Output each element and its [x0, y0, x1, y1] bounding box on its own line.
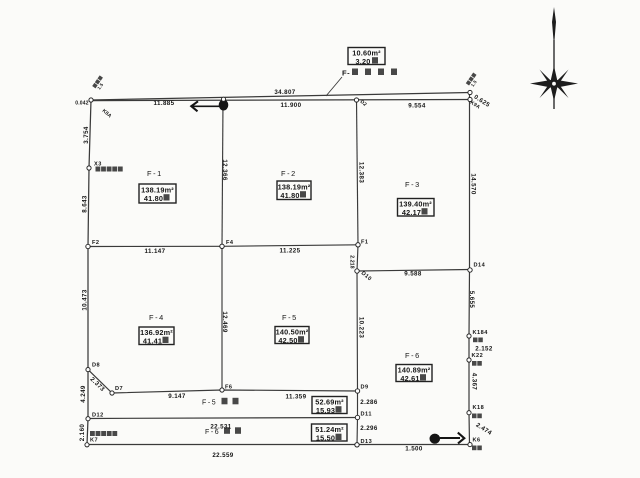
svg-text:F-1: F-1: [147, 169, 163, 178]
svg-text:K7: K7: [90, 438, 98, 444]
svg-text:41.80: 41.80: [144, 194, 163, 203]
svg-text:2.160: 2.160: [79, 424, 86, 442]
svg-text:42.61: 42.61: [400, 374, 419, 383]
svg-text:K184: K184: [473, 330, 489, 336]
svg-text:41.41: 41.41: [143, 336, 162, 345]
svg-text:15.93: 15.93: [316, 406, 335, 415]
svg-text:K22: K22: [472, 353, 484, 359]
svg-text:12.366: 12.366: [221, 159, 228, 180]
svg-text:9.554: 9.554: [408, 103, 426, 110]
svg-text:D12: D12: [92, 413, 104, 419]
svg-text:11.885: 11.885: [154, 100, 175, 107]
svg-text:F-: F-: [342, 69, 350, 78]
svg-text:D14: D14: [474, 263, 486, 269]
svg-text:10.223: 10.223: [357, 317, 364, 338]
svg-text:2.296: 2.296: [360, 425, 378, 432]
svg-text:11.225: 11.225: [280, 248, 301, 255]
svg-text:9.588: 9.588: [404, 271, 422, 278]
svg-text:K18: K18: [473, 405, 485, 411]
svg-text:F1: F1: [361, 240, 369, 246]
svg-text:F-5: F-5: [282, 313, 298, 322]
svg-text:11.359: 11.359: [286, 394, 307, 401]
svg-text:F-3: F-3: [405, 180, 421, 189]
svg-text:8.643: 8.643: [82, 195, 89, 213]
svg-text:22.559: 22.559: [212, 452, 233, 459]
svg-text:42.17: 42.17: [402, 208, 421, 217]
svg-text:15.50: 15.50: [316, 433, 335, 442]
svg-text:12.469: 12.469: [221, 311, 228, 332]
svg-text:F6: F6: [225, 385, 233, 391]
svg-text:F-6: F-6: [405, 351, 421, 360]
svg-text:34.807: 34.807: [274, 89, 295, 96]
svg-text:14.570: 14.570: [470, 173, 477, 194]
svg-text:K6: K6: [473, 438, 481, 444]
svg-text:42.50: 42.50: [278, 336, 297, 345]
svg-text:D9: D9: [361, 385, 369, 391]
svg-text:2.218: 2.218: [349, 255, 355, 269]
svg-text:3.20: 3.20: [355, 57, 370, 66]
svg-text:F-4: F-4: [149, 313, 165, 322]
svg-text:4.367: 4.367: [471, 373, 478, 391]
svg-text:22.531: 22.531: [210, 424, 231, 431]
svg-text:D8: D8: [92, 363, 100, 369]
svg-text:0.042: 0.042: [75, 101, 89, 107]
svg-text:5.655: 5.655: [468, 291, 475, 309]
svg-text:41.80: 41.80: [280, 191, 299, 200]
svg-text:11.900: 11.900: [281, 102, 302, 109]
svg-text:D11: D11: [361, 412, 372, 418]
svg-text:11.147: 11.147: [145, 248, 166, 255]
svg-text:F-5: F-5: [202, 400, 217, 407]
svg-text:2.286: 2.286: [360, 399, 378, 406]
svg-text:D7: D7: [115, 386, 123, 392]
svg-text:D13: D13: [361, 439, 373, 445]
svg-text:1.500: 1.500: [405, 446, 423, 453]
svg-text:10.473: 10.473: [82, 289, 89, 310]
svg-text:F4: F4: [226, 240, 234, 246]
svg-text:9.147: 9.147: [168, 393, 186, 400]
svg-text:12.383: 12.383: [357, 162, 364, 183]
svg-text:F2: F2: [92, 240, 100, 246]
svg-text:3.754: 3.754: [83, 126, 90, 144]
svg-text:4.249: 4.249: [80, 385, 87, 403]
svg-text:F-2: F-2: [281, 169, 297, 178]
svg-text:2.152: 2.152: [475, 346, 493, 353]
